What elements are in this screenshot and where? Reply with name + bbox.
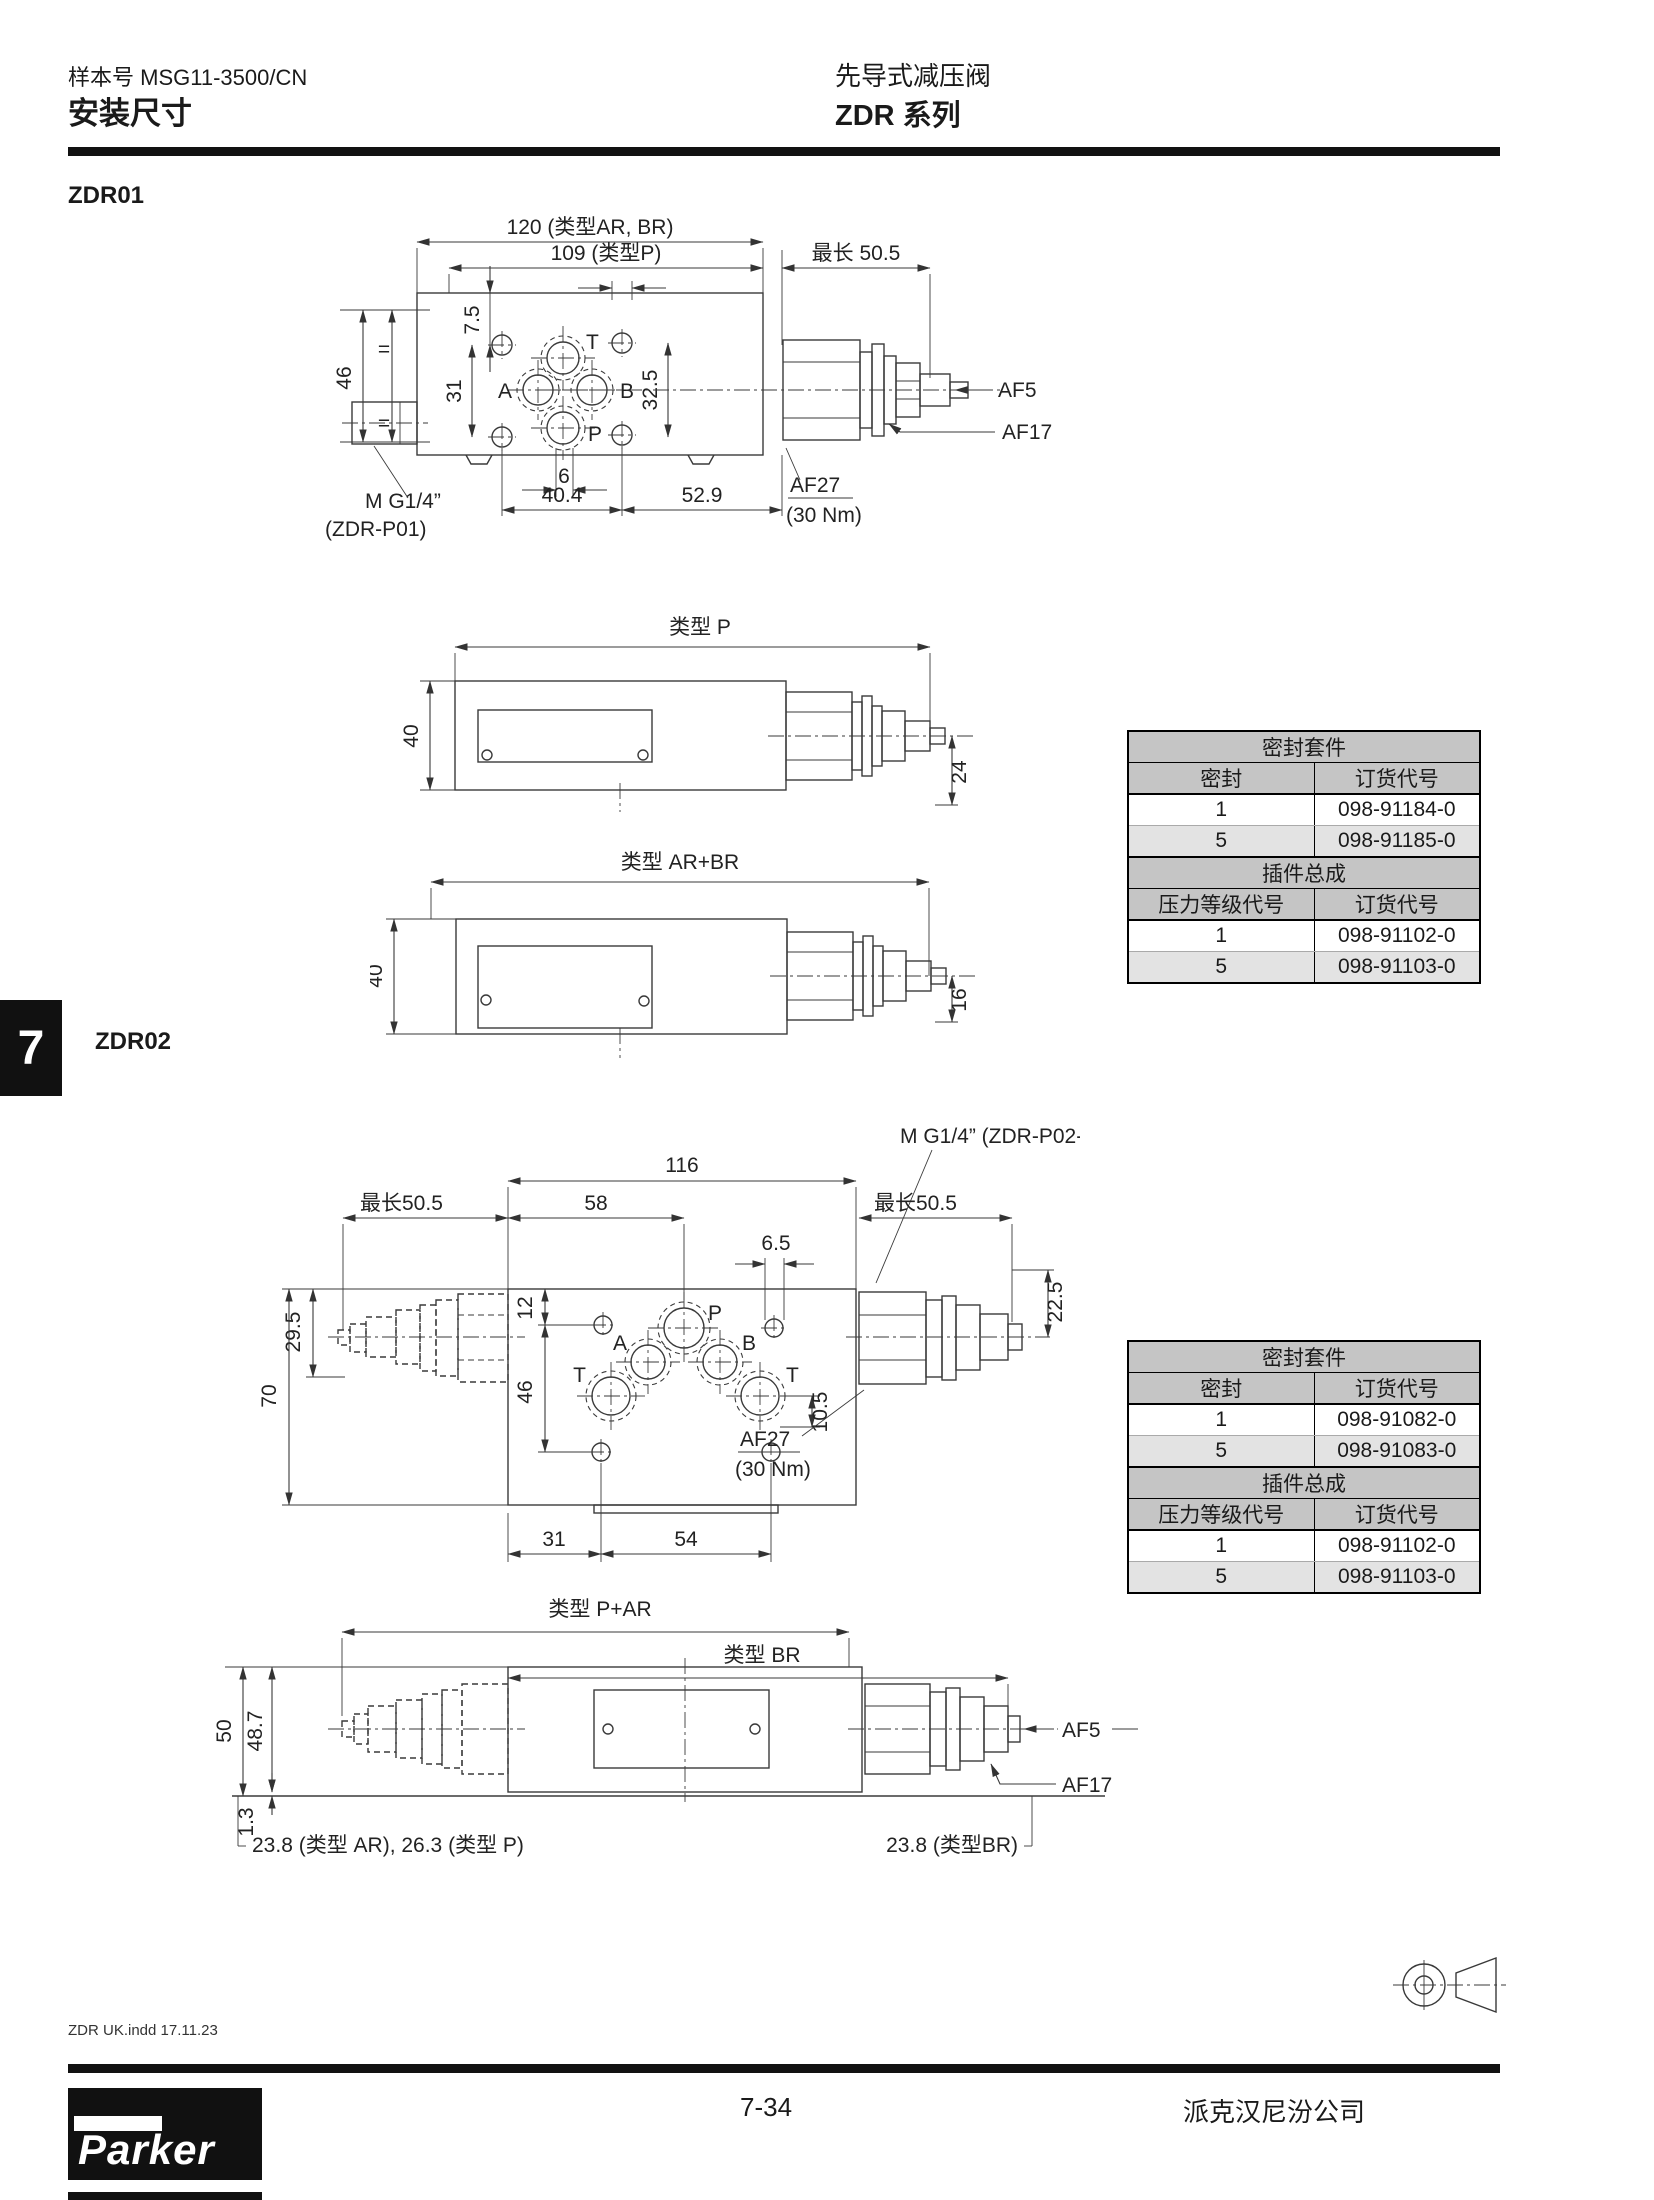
dim-109: 109 (类型P) — [449, 242, 763, 293]
dim-31-label: 31 — [443, 379, 466, 402]
seal-class: 1 — [1128, 794, 1314, 826]
type-p-body — [455, 681, 786, 812]
offset-note-left: 23.8 (类型 AR), 26.3 (类型 P) — [238, 1796, 524, 1857]
port-t-label: T — [573, 1364, 586, 1387]
dim-295-label: 29.5 — [282, 1312, 305, 1353]
parker-logo-word: Parker — [78, 2126, 215, 2174]
table-row: 5 098-91103-0 — [1128, 952, 1480, 984]
dim-max505-label: 最长 50.5 — [812, 242, 901, 265]
port-a-label: A — [613, 1332, 627, 1355]
seal-class: 1 — [1128, 1404, 1314, 1436]
dim-225-label: 22.5 — [1044, 1282, 1067, 1323]
projection-symbol-icon — [1390, 1945, 1510, 2025]
dim-max505: 最长 50.5 — [782, 242, 930, 378]
dim-12-label: 12 — [514, 1296, 537, 1319]
order-code: 098-91184-0 — [1314, 794, 1480, 826]
type-arbr-title: 类型 AR+BR — [621, 851, 739, 874]
col-order-code: 订货代号 — [1314, 763, 1480, 795]
dim-225: 22.5 — [1012, 1270, 1067, 1337]
table-row: 5 098-91083-0 — [1128, 1436, 1480, 1468]
type-arbr-cartridge — [770, 932, 975, 1020]
zdr01-heading: ZDR01 — [68, 182, 144, 210]
dim-109-label: 109 (类型P) — [551, 242, 662, 265]
series-title: ZDR 系列 — [835, 92, 961, 134]
zdr01-order-table: 密封套件 密封 订货代号 1 098-91184-0 5 098-91185-0… — [1127, 730, 1479, 984]
zdr01-type-arbr-drawing: 类型 AR+BR 40 — [370, 840, 990, 1090]
order-code: 098-91082-0 — [1314, 1404, 1480, 1436]
offset-note-left-label: 23.8 (类型 AR), 26.3 (类型 P) — [252, 1834, 524, 1857]
gauge-port-label2: (ZDR-P01) — [325, 518, 427, 541]
col-pressure-class: 压力等级代号 — [1128, 889, 1314, 921]
port-t-label: T — [586, 331, 599, 354]
af27-torque-label: (30 Nm) — [786, 504, 862, 527]
dim-50-label: 50 — [213, 1719, 236, 1742]
zdr01-cartridge — [545, 340, 1000, 440]
equal-mark: = — [378, 412, 390, 435]
footer-rule — [68, 2064, 1500, 2073]
order-code: 098-91102-0 — [1314, 1530, 1480, 1562]
type-p-title: 类型 P — [669, 616, 731, 639]
dim-75-label: 7.5 — [461, 305, 484, 334]
gauge-port-label: M G1/4” — [365, 490, 441, 513]
table-row: 1 098-91184-0 — [1128, 794, 1480, 826]
dim-105: 10.5 — [780, 1392, 832, 1433]
dim-120-label: 120 (类型AR, BR) — [507, 216, 674, 239]
dim-54-label: 54 — [674, 1528, 698, 1551]
dim-16-label: 16 — [948, 988, 971, 1011]
catalog-page: 样本号 MSG11-3500/CN 安装尺寸 先导式减压阀 ZDR 系列 ZDR… — [0, 0, 1654, 2200]
dim-24: 24 — [935, 736, 971, 805]
dim-max-right: 最长50.5 — [859, 1192, 1012, 1322]
af27-torque-label: (30 Nm) — [735, 1458, 811, 1481]
dim-105-label: 10.5 — [809, 1392, 832, 1433]
product-title: 先导式减压阀 — [835, 56, 991, 93]
dim-529-label: 52.9 — [682, 484, 723, 507]
af27-callout: AF27 (30 Nm) — [735, 1390, 864, 1481]
page-number: 7-34 — [740, 2092, 792, 2123]
insert-assy-title: 插件总成 — [1128, 1467, 1480, 1499]
dim-40-label: 40 — [400, 724, 423, 747]
cartridge-left-phantom — [328, 1684, 525, 1774]
dim-max-right-label: 最长50.5 — [874, 1192, 957, 1215]
zdr02-cartridge-left — [328, 1294, 525, 1382]
order-code: 098-91185-0 — [1314, 826, 1480, 858]
pressure-class: 1 — [1128, 1530, 1314, 1562]
af17-callout: AF17 — [889, 421, 1052, 444]
table-row: 5 098-91103-0 — [1128, 1562, 1480, 1594]
af27-callout: AF27 (30 Nm) — [786, 448, 862, 527]
chapter-tab: 7 — [0, 1000, 62, 1096]
print-note: ZDR UK.indd 17.11.23 — [68, 2022, 218, 2039]
af5-callout: AF5 — [1024, 1719, 1138, 1742]
col-pressure-class: 压力等级代号 — [1128, 1499, 1314, 1531]
dim-404-label: 40.4 — [542, 484, 583, 507]
pressure-class: 5 — [1128, 1562, 1314, 1594]
seal-class: 5 — [1128, 826, 1314, 858]
parker-logo: Parker — [68, 2088, 262, 2180]
type-p-cartridge — [768, 692, 975, 780]
dim-max-left-label: 最长50.5 — [360, 1192, 443, 1215]
dim-65: 6.5 — [735, 1232, 814, 1320]
port-p: P — [648, 1292, 722, 1364]
page-title: 安装尺寸 — [68, 88, 192, 133]
port-a: A — [613, 1330, 680, 1394]
dim-70-label: 70 — [258, 1384, 281, 1407]
gauge-port-callout: M G1/4” (ZDR-P01) — [325, 446, 441, 541]
insert-assy-title: 插件总成 — [1128, 857, 1480, 889]
table-row: 5 098-91185-0 — [1128, 826, 1480, 858]
order-code: 098-91083-0 — [1314, 1436, 1480, 1468]
dim-top-slot — [578, 281, 666, 300]
zdr02-order-table: 密封套件 密封 订货代号 1 098-91082-0 5 098-91083-0… — [1127, 1340, 1479, 1594]
offset-note-right: 23.8 (类型BR) — [886, 1796, 1032, 1857]
port-b-label: B — [742, 1332, 756, 1355]
port-t-label: T — [786, 1364, 799, 1387]
dim-116: 116 — [508, 1154, 856, 1289]
table-row: 1 098-91102-0 — [1128, 1530, 1480, 1562]
port-t: T — [531, 326, 599, 390]
col-order-code: 订货代号 — [1314, 1499, 1480, 1531]
pressure-class: 5 — [1128, 952, 1314, 984]
af17-callout: AF17 — [991, 1764, 1112, 1797]
dim-31-label: 31 — [542, 1528, 565, 1551]
equal-mark: = — [378, 338, 390, 361]
zdr01-body-outline — [342, 293, 763, 464]
order-code: 098-91103-0 — [1314, 1562, 1480, 1594]
table-row: 1 098-91082-0 — [1128, 1404, 1480, 1436]
type-arbr-body — [456, 919, 787, 1058]
dim-24-label: 24 — [948, 760, 971, 784]
dim-equal: = = — [378, 310, 392, 442]
zdr02-cartridge-right — [846, 1292, 1050, 1384]
dim-487-label: 48.7 — [244, 1711, 267, 1752]
type-par-title: 类型 P+AR — [548, 1598, 651, 1621]
dim-max-left: 最长50.5 — [343, 1192, 508, 1330]
dim-65-label: 6.5 — [761, 1232, 790, 1255]
dim-46-label: 46 — [514, 1380, 537, 1403]
dim-40-label: 40 — [370, 964, 387, 987]
col-seal: 密封 — [1128, 763, 1314, 795]
col-order-code: 订货代号 — [1314, 889, 1480, 921]
seal-class: 5 — [1128, 1436, 1314, 1468]
seal-kit-title: 密封套件 — [1128, 731, 1480, 763]
port-a-label: A — [498, 380, 512, 403]
table-row: 1 098-91102-0 — [1128, 920, 1480, 952]
af17-label: AF17 — [1002, 421, 1052, 444]
company-name: 派克汉尼汾公司 — [1183, 2092, 1365, 2129]
zdr02-side-body — [232, 1658, 1105, 1802]
zdr01-type-p-drawing: 类型 P 40 — [390, 595, 990, 825]
dim-487: 48.7 — [244, 1667, 272, 1792]
dim-13: 1.3 — [235, 1773, 272, 1837]
zdr02-top-view-drawing: M G1/4” (ZDR-P02-...) 116 58 最长50.5 最长50… — [230, 1085, 1080, 1575]
af5-label: AF5 — [998, 379, 1037, 402]
pressure-class: 1 — [1128, 920, 1314, 952]
type-p-title-dim: 类型 P — [455, 616, 930, 737]
dim-46-label: 46 — [333, 366, 356, 389]
zdr01-top-view-drawing: T A B P — [220, 150, 1060, 570]
dim-58: 58 — [508, 1192, 684, 1300]
af27-label: AF27 — [740, 1428, 790, 1451]
dim-116-label: 116 — [665, 1154, 698, 1177]
port-p-label: P — [708, 1302, 722, 1325]
seal-kit-title: 密封套件 — [1128, 1341, 1480, 1373]
af17-label: AF17 — [1062, 1774, 1112, 1797]
dim-40-arbr: 40 — [370, 919, 462, 1034]
zdr02-heading: ZDR02 — [95, 1028, 171, 1056]
order-code: 098-91103-0 — [1314, 952, 1480, 984]
dim-295: 29.5 — [282, 1289, 345, 1377]
type-arbr-title-dim: 类型 AR+BR — [431, 851, 929, 976]
col-seal: 密封 — [1128, 1373, 1314, 1405]
dim-40-p: 40 — [400, 681, 460, 790]
dim-31: 31 — [443, 345, 472, 437]
col-order-code: 订货代号 — [1314, 1373, 1480, 1405]
zdr02-side-view-drawing: 类型 P+AR 类型 BR — [160, 1595, 1140, 1865]
dim-16: 16 — [935, 976, 971, 1022]
chapter-number: 7 — [18, 1021, 45, 1076]
dim-75: 7.5 — [461, 266, 490, 372]
order-code: 098-91102-0 — [1314, 920, 1480, 952]
parker-logo-strip — [68, 2192, 262, 2200]
thread-label: M G1/4” (ZDR-P02-...) — [900, 1125, 1080, 1148]
dim-58-label: 58 — [584, 1192, 607, 1215]
af27-label: AF27 — [790, 474, 840, 497]
port-p-label: P — [588, 423, 602, 446]
type-br-title-dim: 类型 BR — [508, 1644, 1008, 1714]
port-b-label: B — [620, 380, 634, 403]
offset-note-right-label: 23.8 (类型BR) — [886, 1834, 1018, 1857]
type-br-title: 类型 BR — [723, 1644, 800, 1667]
af5-label: AF5 — [1062, 1719, 1101, 1742]
